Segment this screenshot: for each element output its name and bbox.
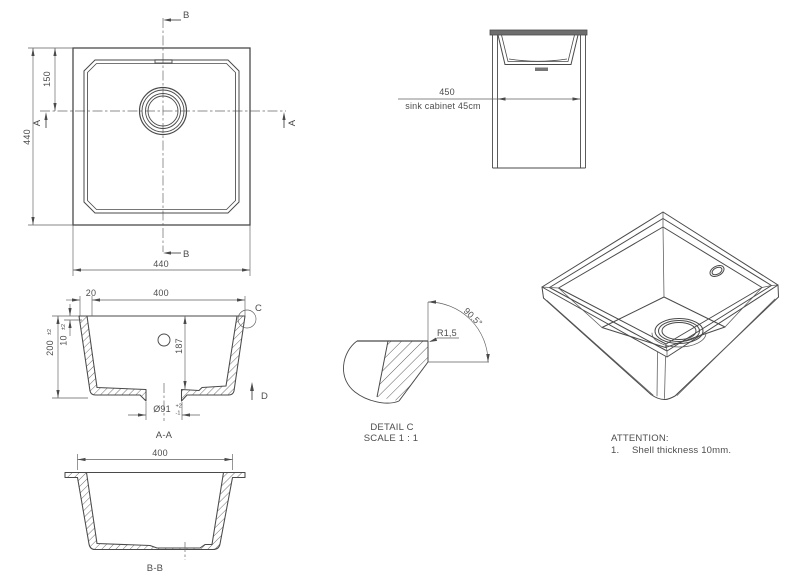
cabinet-caption: sink cabinet 45cm — [405, 101, 480, 111]
detail-c-wall-hatch — [377, 341, 428, 401]
aa-dim-width: 400 — [153, 288, 169, 298]
marker-b-label: B — [183, 10, 190, 21]
cabinet-bowl-outer — [498, 35, 578, 65]
plan-dim-left: 440 — [22, 129, 32, 145]
attention-note: ATTENTION: 1. Shell thickness 10mm. — [611, 433, 731, 456]
aa-drain-tol-plus: +2 — [176, 404, 182, 410]
section-marker-b-top: B — [163, 10, 190, 22]
drawing-svg: 440 150 440 B B A A — [0, 0, 800, 579]
marker-d-label: D — [261, 391, 268, 402]
plan-outer-square — [73, 48, 250, 225]
aa-dim-rim-width: 20 — [86, 288, 96, 298]
section-marker-a-right: A — [282, 112, 298, 128]
aa-dim-depth: 187 — [174, 338, 184, 354]
detail-c-scale: SCALE 1 : 1 — [364, 433, 418, 444]
marker-a-label: A — [287, 119, 298, 126]
marker-b-label: B — [183, 249, 190, 260]
section-a-a: 20 400 200 ±2 10 ±2 187 Ø91 +2 -1 C — [45, 288, 268, 441]
aa-caption: A-A — [156, 430, 173, 441]
marker-a-label: A — [32, 119, 43, 126]
countertop — [490, 30, 587, 35]
direction-marker-d: D — [250, 382, 268, 402]
aa-dim-rim-height-tol: ±2 — [61, 324, 67, 330]
detail-c-title: DETAIL C — [370, 422, 413, 433]
plan-dim-bottom: 440 — [153, 259, 169, 269]
iso-rim-inner — [550, 219, 772, 352]
bb-shell — [65, 473, 245, 550]
plan-view: 440 150 440 B B A A — [22, 10, 298, 276]
technical-drawing-sheet: 440 150 440 B B A A — [0, 0, 800, 579]
cabinet-bowl-bottom-curve — [509, 59, 567, 61]
aa-dim-rim-height: 10 — [59, 335, 69, 345]
cabinet-side-view: 450 sink cabinet 45cm — [398, 30, 587, 168]
section-marker-a-left: A — [32, 112, 48, 128]
detail-c-angle: 90.5° — [462, 306, 485, 329]
detail-c-view: 90.5° R1,5 DETAIL C SCALE 1 : 1 — [343, 300, 489, 444]
isometric-view — [542, 212, 779, 400]
plan-inner-rim-outer — [84, 60, 239, 213]
marker-c-label: C — [255, 303, 262, 314]
attention-item-number: 1. — [611, 445, 619, 456]
bb-caption: B-B — [147, 563, 163, 574]
aa-dim-height-tol: ±2 — [47, 329, 53, 335]
cabinet-bowl-inner — [502, 35, 575, 62]
aa-dim-height: 200 — [45, 340, 55, 356]
section-b-b: 400 B-B — [65, 448, 245, 574]
aa-drain-tol-minus: -1 — [176, 411, 181, 417]
bb-dim-width: 400 — [152, 448, 168, 458]
iso-overflow — [708, 263, 726, 279]
aa-overflow-circle — [158, 334, 170, 346]
plan-inner-rim-inner — [88, 64, 236, 210]
plan-dim-offset: 150 — [42, 71, 52, 87]
attention-item-text: Shell thickness 10mm. — [632, 445, 731, 456]
cabinet-dim: 450 — [439, 87, 455, 97]
attention-heading: ATTENTION: — [611, 433, 669, 444]
aa-shell-left — [79, 316, 146, 401]
aa-dim-drain: Ø91 — [153, 404, 171, 414]
detail-c-radius: R1,5 — [437, 328, 457, 338]
aa-shell-right — [182, 316, 246, 401]
iso-floor — [602, 297, 725, 348]
cabinet-drain-stub — [535, 68, 548, 72]
